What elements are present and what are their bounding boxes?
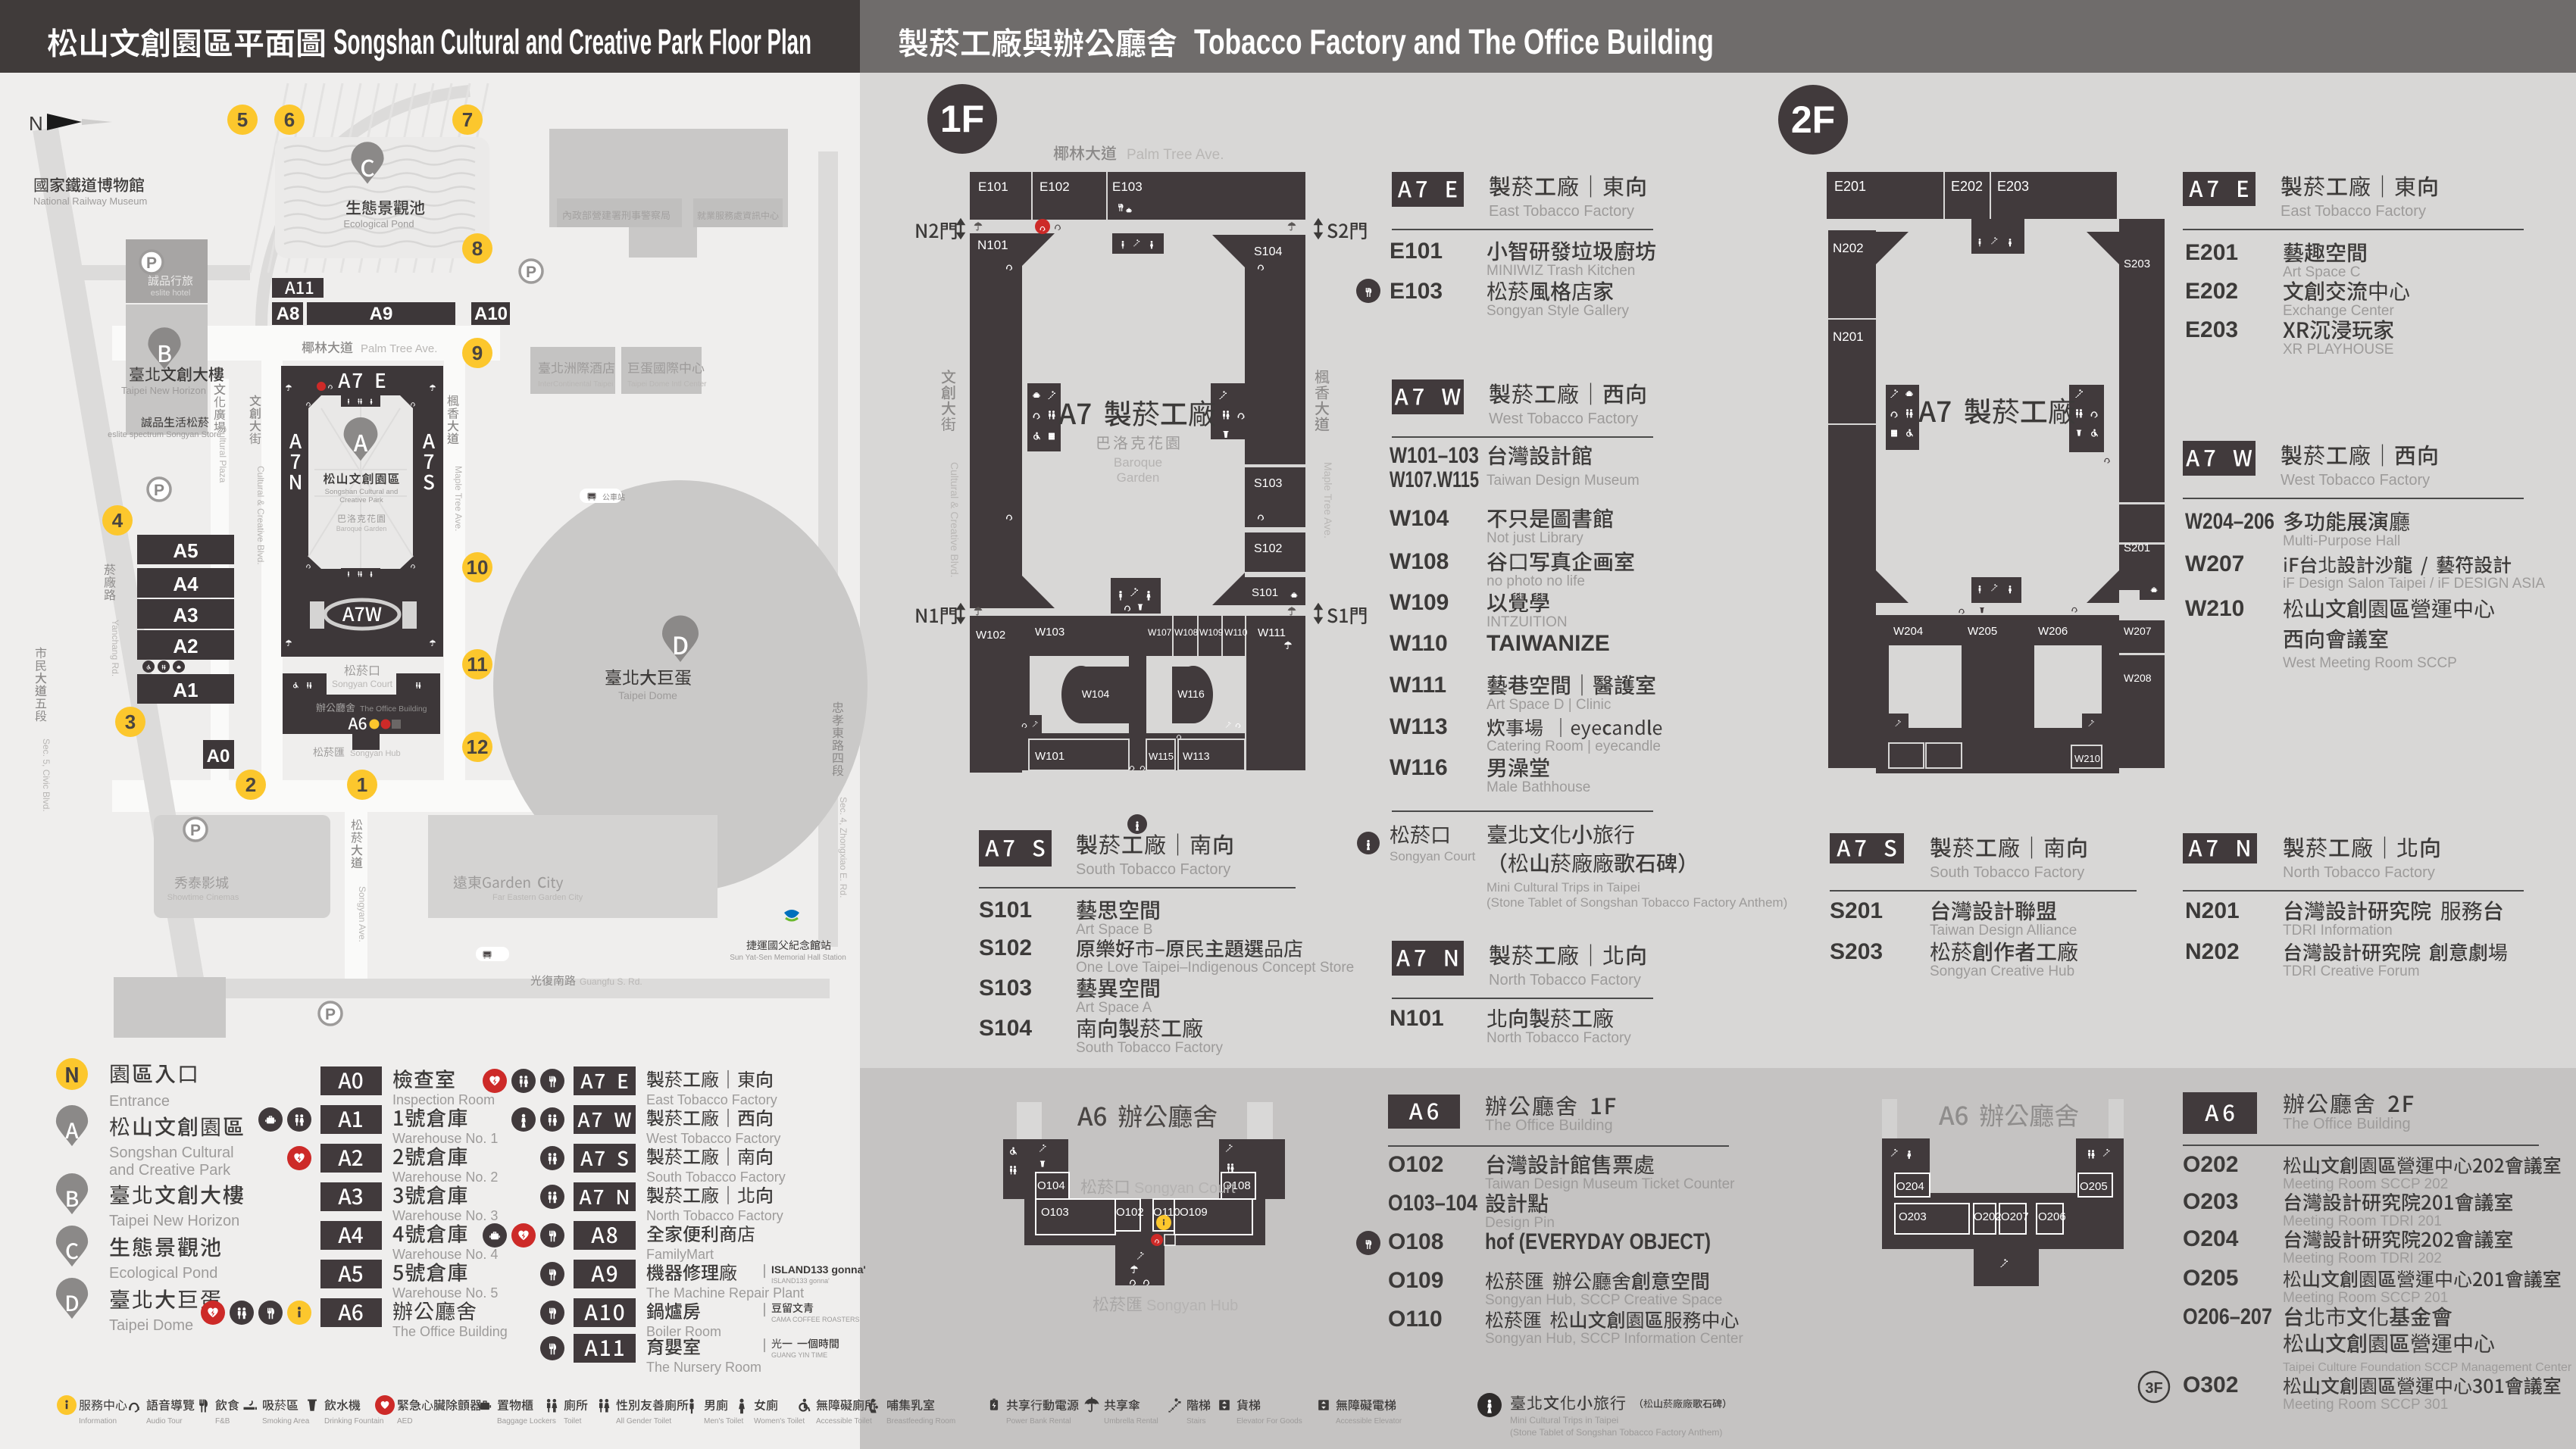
svg-text:W113: W113 (1183, 750, 1210, 762)
svg-text:S201: S201 (2124, 542, 2150, 554)
svg-text:Garden: Garden (1117, 470, 1160, 485)
svg-text:S104: S104 (979, 1016, 1032, 1041)
svg-text:(Stone Tablet of Songshan Toba: (Stone Tablet of Songshan Tobacco Factor… (1487, 895, 1787, 910)
svg-text:Warehouse No. 5: Warehouse No. 5 (392, 1285, 498, 1301)
svg-text:Warehouse No. 4: Warehouse No. 4 (392, 1247, 498, 1262)
svg-text:O109: O109 (1388, 1268, 1443, 1293)
svg-text:Drinking Fountain: Drinking Fountain (324, 1417, 383, 1426)
svg-text:E202: E202 (2185, 279, 2238, 304)
svg-text:N201: N201 (1833, 329, 1864, 344)
svg-text:Power Bank Rental: Power Bank Rental (1006, 1417, 1071, 1426)
svg-text:West Tobacco Factory: West Tobacco Factory (1489, 411, 1638, 427)
svg-text:Ecological Pond: Ecological Pond (109, 1265, 217, 1282)
svg-text:Cultural & Creative Blvd.: Cultural & Creative Blvd. (255, 466, 266, 565)
svg-text:Multi-Purpose Hall: Multi-Purpose Hall (2283, 533, 2400, 549)
svg-text:E101: E101 (978, 180, 1008, 194)
svg-text:Sec. 4, Zhongxiao E. Rd.: Sec. 4, Zhongxiao E. Rd. (838, 797, 849, 898)
svg-text:O108: O108 (1388, 1229, 1443, 1254)
svg-text:Umbrella Rental: Umbrella Rental (1104, 1417, 1158, 1426)
svg-text:MINIWIZ Trash Kitchen: MINIWIZ Trash Kitchen (1487, 263, 1635, 279)
svg-text:E201: E201 (2185, 240, 2238, 265)
svg-text:A2: A2 (173, 635, 198, 657)
svg-text:W108: W108 (1174, 627, 1199, 638)
svg-text:O206: O206 (2038, 1210, 2066, 1223)
svg-text:Mini Cultural Trips in Taipei: Mini Cultural Trips in Taipei (1510, 1415, 1618, 1426)
svg-text:The Nursery Room: The Nursery Room (646, 1360, 761, 1375)
svg-text:Showtime Cinemas: Showtime Cinemas (167, 893, 239, 902)
svg-text:Catering Room | eyecandle: Catering Room | eyecandle (1487, 739, 1661, 754)
svg-text:E203: E203 (2185, 317, 2238, 342)
svg-text:The Office Building: The Office Building (392, 1324, 508, 1339)
svg-text:AED: AED (397, 1417, 413, 1426)
svg-text:Songyan Ave.: Songyan Ave. (357, 886, 367, 942)
svg-text:South Tobacco Factory: South Tobacco Factory (1076, 1040, 1223, 1056)
svg-text:E103: E103 (1112, 180, 1143, 194)
svg-text:O110: O110 (1388, 1307, 1443, 1332)
svg-text:ISLAND133 gonna': ISLAND133 gonna' (771, 1263, 866, 1276)
svg-text:Taipei Dome: Taipei Dome (618, 689, 677, 701)
svg-text:Cultural & Creative Blvd.: Cultural & Creative Blvd. (949, 462, 961, 578)
svg-text:W109: W109 (1390, 590, 1449, 615)
svg-text:Meeting Room TDRI 202: Meeting Room TDRI 202 (2283, 1251, 2442, 1266)
svg-text:Baroque Garden: Baroque Garden (336, 525, 387, 532)
svg-text:O202: O202 (2183, 1152, 2238, 1177)
svg-text:W111: W111 (1258, 626, 1286, 639)
svg-text:O103: O103 (1041, 1206, 1069, 1219)
svg-text:Inspection Room: Inspection Room (392, 1092, 495, 1107)
svg-text:11: 11 (467, 653, 488, 676)
svg-text:East Tobacco Factory: East Tobacco Factory (2281, 203, 2426, 220)
svg-text:E101: E101 (1390, 239, 1443, 264)
svg-text:Songyan Hub, SCCP Creative Spa: Songyan Hub, SCCP Creative Space (1485, 1292, 1722, 1308)
svg-text:W204: W204 (1893, 625, 1923, 638)
svg-text:W108: W108 (1390, 549, 1449, 574)
svg-text:O202: O202 (1974, 1210, 2002, 1223)
svg-text:9: 9 (472, 342, 483, 364)
svg-text:O206–207: O206–207 (2183, 1304, 2272, 1329)
svg-text:Not just Library: Not just Library (1487, 530, 1583, 546)
svg-text:W207: W207 (2185, 551, 2244, 576)
svg-text:The Office Building: The Office Building (360, 704, 427, 714)
svg-text:公車站: 公車站 (602, 492, 625, 502)
svg-text:Songyan Hub, SCCP Information: Songyan Hub, SCCP Information Center (1485, 1331, 1743, 1347)
svg-text:S104: S104 (1254, 245, 1282, 258)
svg-text:Tobacco Factory and The Office: Tobacco Factory and The Office Building (1194, 22, 1714, 61)
svg-text:E202: E202 (1951, 179, 1983, 194)
svg-text:A8: A8 (277, 304, 300, 324)
svg-text:A0: A0 (207, 746, 230, 767)
svg-text:InterContinental Taipei: InterContinental Taipei (538, 380, 613, 389)
svg-text:Meeting Room SCCP 201: Meeting Room SCCP 201 (2283, 1290, 2448, 1306)
svg-text:W208: W208 (2124, 672, 2152, 684)
svg-text:Toilet: Toilet (564, 1417, 582, 1426)
svg-text:E203: E203 (1997, 179, 2029, 194)
svg-text:East Tobacco Factory: East Tobacco Factory (1489, 203, 1634, 220)
svg-text:1F: 1F (940, 98, 984, 140)
svg-text:W110: W110 (1224, 627, 1248, 638)
svg-text:and Creative Park: and Creative Park (109, 1162, 231, 1179)
svg-text:ISLAND133 gonna': ISLAND133 gonna' (771, 1277, 830, 1285)
svg-text:Art Space B: Art Space B (1076, 922, 1152, 938)
svg-text:Songyan Court: Songyan Court (1134, 1180, 1236, 1197)
svg-text:Accessible Toilet: Accessible Toilet (816, 1417, 872, 1426)
svg-text:W104: W104 (1390, 506, 1449, 531)
svg-text:O103–104: O103–104 (1388, 1191, 1477, 1216)
svg-text:North Tobacco Factory: North Tobacco Factory (1487, 1030, 1631, 1046)
svg-text:E102: E102 (1039, 180, 1070, 194)
svg-text:S203: S203 (2124, 258, 2150, 270)
svg-text:W103: W103 (1035, 626, 1064, 639)
svg-text:W113: W113 (1390, 714, 1448, 739)
svg-text:P: P (146, 255, 157, 272)
svg-text:TAIWANIZE: TAIWANIZE (1487, 631, 1610, 656)
svg-text:A10: A10 (474, 304, 508, 324)
svg-text:S103: S103 (1254, 477, 1282, 490)
svg-text:N101: N101 (1390, 1006, 1444, 1031)
svg-text:Songyan Court: Songyan Court (1390, 849, 1476, 863)
svg-text:Taipei Culture Foundation SCCP: Taipei Culture Foundation SCCP Managemen… (2283, 1361, 2572, 1374)
svg-text:Men's Toilet: Men's Toilet (704, 1417, 744, 1426)
svg-text:W205: W205 (1968, 625, 1997, 638)
svg-text:P: P (154, 482, 164, 499)
svg-text:Songshan Cultural and: Songshan Cultural and (325, 488, 399, 496)
svg-text:O205: O205 (2183, 1266, 2238, 1291)
svg-text:W110: W110 (1390, 631, 1448, 656)
svg-text:Sec. 5, Civic Blvd.: Sec. 5, Civic Blvd. (41, 739, 52, 812)
svg-text:Warehouse No. 1: Warehouse No. 1 (392, 1131, 498, 1146)
svg-text:eslite hotel: eslite hotel (151, 289, 191, 298)
svg-text:W116: W116 (1177, 688, 1205, 700)
svg-text:Art Space D | Clinic: Art Space D | Clinic (1487, 697, 1611, 713)
svg-text:TDRI Creative Forum: TDRI Creative Forum (2283, 963, 2420, 979)
svg-text:P: P (190, 822, 201, 839)
svg-text:(Stone Tablet of Songshan Toba: (Stone Tablet of Songshan Tobacco Factor… (1510, 1427, 1722, 1438)
svg-text:E103: E103 (1390, 279, 1443, 304)
svg-text:XR PLAYHOUSE: XR PLAYHOUSE (2283, 342, 2393, 358)
svg-text:Songshan Cultural: Songshan Cultural (109, 1145, 234, 1161)
svg-text:Baggage Lockers: Baggage Lockers (497, 1417, 556, 1426)
svg-text:Guangfu S. Rd.: Guangfu S. Rd. (580, 976, 642, 987)
svg-text:1: 1 (357, 773, 367, 796)
svg-text:4: 4 (112, 509, 123, 532)
svg-text:Taipei New Horizon: Taipei New Horizon (121, 385, 206, 396)
svg-text:INTZUITION: INTZUITION (1487, 614, 1568, 630)
svg-text:N202: N202 (2185, 939, 2240, 964)
svg-text:Meeting Room TDRI 201: Meeting Room TDRI 201 (2283, 1213, 2442, 1229)
svg-text:2: 2 (245, 773, 256, 796)
svg-text:North Tobacco Factory: North Tobacco Factory (1489, 972, 1641, 988)
svg-text:Audio Tour: Audio Tour (146, 1417, 183, 1426)
svg-text:East Tobacco Factory: East Tobacco Factory (646, 1092, 777, 1107)
svg-text:W210: W210 (2185, 596, 2244, 621)
svg-text:S203: S203 (1830, 939, 1883, 964)
svg-text:A5: A5 (173, 539, 198, 562)
svg-text:W204–206: W204–206 (2185, 509, 2274, 534)
svg-text:Meeting Room SCCP 202: Meeting Room SCCP 202 (2283, 1176, 2448, 1192)
svg-text:O205: O205 (2080, 1180, 2108, 1193)
svg-text:O104: O104 (1037, 1179, 1065, 1192)
svg-text:Songyan Creative Hub: Songyan Creative Hub (1930, 963, 2074, 979)
svg-text:All Gender Toilet: All Gender Toilet (616, 1417, 671, 1426)
svg-text:W104: W104 (1082, 688, 1110, 700)
svg-text:eslite spectrum Songyan Store: eslite spectrum Songyan Store (108, 430, 221, 439)
svg-text:West Meeting Room SCCP: West Meeting Room SCCP (2283, 655, 2457, 671)
svg-text:2F: 2F (1791, 98, 1835, 141)
svg-text:7: 7 (462, 108, 473, 131)
svg-text:W206: W206 (2038, 625, 2068, 638)
svg-text:W109: W109 (1199, 627, 1224, 638)
svg-text:Maple Tree Ave.: Maple Tree Ave. (453, 466, 464, 532)
svg-text:Taipei Dome Intl Center: Taipei Dome Intl Center (627, 380, 707, 389)
svg-text:Baroque: Baroque (1114, 455, 1162, 470)
svg-text:TDRI Information: TDRI Information (2283, 923, 2393, 938)
svg-text:W210: W210 (2074, 753, 2100, 764)
svg-text:W101–103: W101–103 (1390, 443, 1479, 468)
svg-text:Taiwan Design Alliance: Taiwan Design Alliance (1930, 923, 2077, 938)
svg-text:Songyan Court: Songyan Court (332, 679, 393, 689)
svg-text:6: 6 (284, 108, 295, 131)
svg-text:N: N (29, 112, 43, 135)
svg-text:Boiler Room: Boiler Room (646, 1324, 721, 1339)
svg-text:P: P (526, 264, 536, 281)
svg-text:West Tobacco Factory: West Tobacco Factory (2281, 472, 2430, 489)
svg-text:N201: N201 (2185, 898, 2240, 923)
svg-text:no photo no life: no photo no life (1487, 573, 1585, 589)
svg-text:Creative Park: Creative Park (339, 496, 383, 504)
svg-text:Exchange Center: Exchange Center (2283, 303, 2394, 319)
svg-text:CAMA COFFEE ROASTERS: CAMA COFFEE ROASTERS (771, 1316, 860, 1323)
svg-text:10: 10 (467, 556, 489, 579)
svg-text:One Love Taipei–Indigenous Con: One Love Taipei–Indigenous Concept Store (1076, 960, 1354, 976)
svg-text:Elevator For Goods: Elevator For Goods (1236, 1417, 1302, 1426)
svg-text:S103: S103 (979, 976, 1032, 1001)
svg-text:S201: S201 (1830, 898, 1883, 923)
svg-text:O204: O204 (1896, 1180, 1924, 1193)
svg-text:O302: O302 (2183, 1372, 2238, 1397)
svg-text:O102: O102 (1388, 1152, 1443, 1177)
svg-text:Palm Tree Ave.: Palm Tree Ave. (361, 342, 437, 355)
svg-text:O203: O203 (1899, 1210, 1927, 1223)
svg-text:Taipei New Horizon: Taipei New Horizon (109, 1213, 239, 1229)
svg-text:E201: E201 (1834, 179, 1866, 194)
svg-text:South Tobacco Factory: South Tobacco Factory (1076, 861, 1230, 878)
svg-text:P: P (325, 1006, 336, 1023)
svg-text:8: 8 (472, 237, 483, 260)
svg-text:W107: W107 (1148, 627, 1172, 638)
svg-text:The Machine Repair Plant: The Machine Repair Plant (646, 1285, 804, 1301)
svg-text:Maple Tree Ave.: Maple Tree Ave. (1322, 462, 1334, 539)
svg-text:North Tobacco Factory: North Tobacco Factory (2283, 864, 2435, 881)
svg-text:S102: S102 (1254, 542, 1282, 555)
svg-text:Mini Cultural Trips in Taipei: Mini Cultural Trips in Taipei (1487, 880, 1640, 895)
svg-text:Meeting Room SCCP 301: Meeting Room SCCP 301 (2283, 1397, 2448, 1413)
svg-text:A9: A9 (370, 304, 393, 324)
svg-text:A1: A1 (173, 679, 198, 701)
svg-text:W115: W115 (1149, 751, 1174, 762)
svg-text:Taiwan Design Museum Ticket Co: Taiwan Design Museum Ticket Counter (1485, 1176, 1735, 1192)
svg-text:W107.W115: W107.W115 (1390, 467, 1479, 492)
svg-text:GUANG YIN TIME: GUANG YIN TIME (771, 1351, 827, 1359)
svg-text:iF Design Salon Taipei / iF DE: iF Design Salon Taipei / iF DESIGN ASIA (2283, 576, 2545, 592)
svg-text:S101: S101 (1252, 586, 1278, 599)
svg-text:Songyan Style Gallery: Songyan Style Gallery (1487, 303, 1629, 319)
svg-text:Art Space C: Art Space C (2283, 264, 2360, 280)
svg-text:12: 12 (467, 735, 489, 758)
svg-text:National Railway Museum: National Railway Museum (33, 195, 147, 207)
svg-text:A4: A4 (173, 573, 199, 595)
svg-text:W207: W207 (2124, 625, 2152, 637)
svg-text:Far Eastern Garden City: Far Eastern Garden City (492, 893, 583, 902)
svg-text:Smoking Area: Smoking Area (262, 1417, 310, 1426)
svg-text:W116: W116 (1390, 755, 1448, 780)
svg-text:Accessible Elevator: Accessible Elevator (1336, 1417, 1402, 1426)
svg-text:W101: W101 (1035, 750, 1064, 763)
svg-text:Ecological Pond: Ecological Pond (343, 218, 414, 230)
svg-text:Sun Yat-Sen Memorial Hall Stat: Sun Yat-Sen Memorial Hall Station (730, 954, 846, 962)
svg-text:Songshan Cultural and Creative: Songshan Cultural and Creative Park Floo… (333, 22, 811, 61)
svg-text:Taiwan Design Museum: Taiwan Design Museum (1487, 473, 1640, 489)
svg-text:Palm Tree Ave.: Palm Tree Ave. (1127, 147, 1224, 163)
svg-text:Information: Information (79, 1417, 117, 1426)
svg-text:Songyan Hub: Songyan Hub (350, 749, 401, 758)
svg-text:O204: O204 (2183, 1226, 2239, 1251)
svg-text:W102: W102 (976, 629, 1005, 642)
svg-text:A3: A3 (173, 604, 198, 626)
svg-text:Warehouse No. 3: Warehouse No. 3 (392, 1208, 498, 1223)
svg-text:3F: 3F (2145, 1380, 2162, 1397)
svg-text:S101: S101 (979, 898, 1032, 923)
svg-text:Breastfeeding Room: Breastfeeding Room (886, 1417, 955, 1426)
svg-text:W111: W111 (1390, 673, 1446, 698)
svg-text:S102: S102 (979, 935, 1032, 960)
svg-text:N101: N101 (977, 238, 1008, 252)
svg-text:O207: O207 (2001, 1210, 2029, 1223)
svg-text:hof (EVERYDAY OBJECT): hof (EVERYDAY OBJECT) (1485, 1229, 1711, 1254)
svg-text:O109: O109 (1180, 1206, 1208, 1219)
svg-text:Stairs: Stairs (1186, 1417, 1206, 1426)
svg-text:Songyan Hub: Songyan Hub (1146, 1298, 1238, 1314)
svg-text:North Tobacco Factory: North Tobacco Factory (646, 1208, 783, 1223)
svg-text:N202: N202 (1833, 241, 1864, 255)
svg-text:The Office Building: The Office Building (1485, 1117, 1613, 1134)
svg-text:Women's Toilet: Women's Toilet (754, 1417, 805, 1426)
svg-text:Taipei Dome: Taipei Dome (109, 1317, 193, 1334)
svg-text:Warehouse No. 2: Warehouse No. 2 (392, 1170, 498, 1185)
svg-text:O203: O203 (2183, 1189, 2238, 1214)
svg-text:West Tobacco Factory: West Tobacco Factory (646, 1131, 780, 1146)
svg-text:Art Space A: Art Space A (1076, 1000, 1152, 1016)
svg-text:F&B: F&B (215, 1417, 230, 1426)
svg-text:Yanchang Rd.: Yanchang Rd. (110, 620, 120, 676)
svg-text:5: 5 (237, 108, 248, 131)
svg-text:Cultural Plaza: Cultural Plaza (217, 426, 228, 483)
svg-text:FamilyMart: FamilyMart (646, 1247, 714, 1262)
svg-text:South Tobacco Factory: South Tobacco Factory (646, 1170, 786, 1185)
svg-text:Design Pin: Design Pin (1485, 1215, 1555, 1231)
svg-text:The Office Building: The Office Building (2283, 1116, 2411, 1132)
svg-text:O102: O102 (1116, 1206, 1144, 1219)
svg-text:Entrance: Entrance (109, 1093, 170, 1110)
svg-text:South Tobacco Factory: South Tobacco Factory (1930, 864, 2084, 881)
svg-text:Male Bathhouse: Male Bathhouse (1487, 779, 1590, 795)
svg-text:3: 3 (125, 710, 136, 733)
